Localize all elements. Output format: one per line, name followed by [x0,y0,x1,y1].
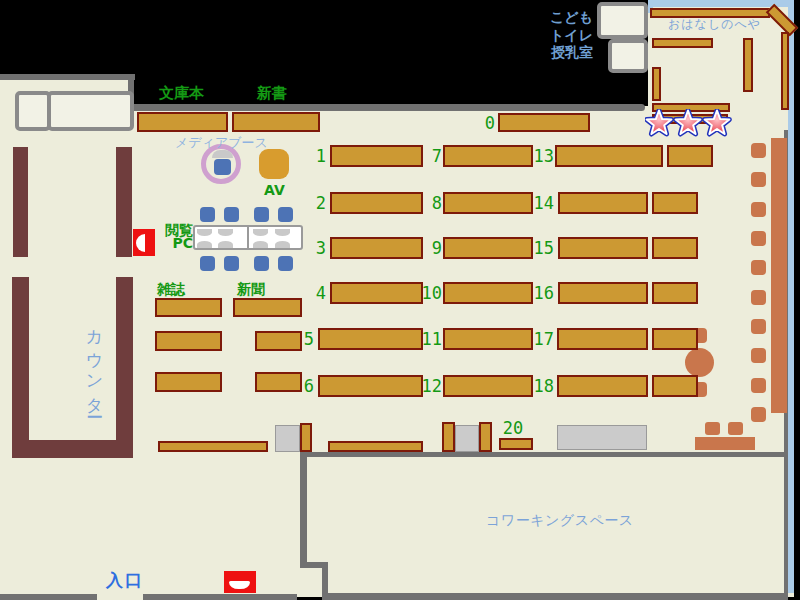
shelf-label-11: 11 [412,329,442,350]
bench-stool [705,422,720,435]
ohanashi-shelf-v2 [652,67,661,101]
pc-chair [278,207,293,222]
shelf-8 [443,192,533,214]
pc-chair [224,207,239,222]
shelf-16 [558,282,648,304]
kids-room-box-2 [608,39,648,73]
pc-table-divider [247,226,249,249]
kids-room-box-1 [597,2,648,39]
pc-station [275,229,290,236]
shelf-label-17: 17 [524,329,554,350]
shelf-label-6: 6 [284,376,314,397]
gray-box-3 [557,425,647,450]
coworking-wall-bottom [322,593,788,600]
counter-label: カウンター [84,318,107,410]
window-stool [751,231,766,246]
pc-station [218,241,233,248]
shelf-label-15: 15 [524,238,554,259]
shelf-label-12: 12 [412,376,442,397]
window-stool [751,290,766,305]
ohanashi-shelf-v1 [743,38,753,92]
shelf-4 [330,282,423,304]
pc-chair [200,256,215,271]
stairs-box-large [47,91,134,131]
window-stool [751,378,766,393]
av-booth [259,149,289,179]
coworking-label: コワーキングスペース [486,512,634,530]
low-shelf-2 [328,441,423,452]
shelf-label-5: 5 [284,329,314,350]
shelf-9 [443,237,533,259]
shelf-17 [557,328,648,350]
window-stool [751,260,766,275]
star-icon [676,111,701,135]
bench [695,437,755,450]
pc-station [218,229,233,236]
shinsho-label: 新書 [257,84,287,103]
ceiling-left [0,0,134,78]
shelf-0 [498,113,590,132]
window-stool [751,172,766,187]
av-label: AV [264,182,284,198]
shelf-18 [557,375,648,397]
shelf-label-3: 3 [296,238,326,259]
shelf-13 [555,145,663,167]
shinsho-shelf [232,112,320,132]
bench-stool [728,422,743,435]
shelf-17-extra [652,328,698,350]
shelf-label-8: 8 [412,193,442,214]
stairs-box-small [15,91,51,131]
junyushitsu-label: 授乳室 [547,44,593,62]
pc-chair [254,256,269,271]
shelf-label-7: 7 [412,146,442,167]
coworking-wall-left2 [322,562,328,597]
shelf-6 [318,375,423,397]
window-stool [751,202,766,217]
shelf-label-14: 14 [524,193,554,214]
low-shelf-v1 [300,423,312,452]
bunkobon-label: 文庫本 [159,84,204,103]
shelf-label-16: 16 [524,283,554,304]
shelf-18-extra [652,375,698,397]
shelf-5 [318,328,423,350]
window-stool [751,143,766,158]
stars-row [645,109,733,138]
shelf-label-0: 0 [465,113,495,134]
pc-chair [200,207,215,222]
ohanashi-room-label: おはなしのへや [668,16,761,33]
pc-station [197,241,212,248]
shelf-label-2: 2 [296,193,326,214]
shelf-11 [443,328,533,350]
pc-station [275,241,290,248]
shelf-7 [443,145,533,167]
counter-left [12,277,29,458]
shelf-3 [330,237,423,259]
media-booth-chair [214,159,231,175]
shelf-label-1: 1 [296,146,326,167]
pc-station [197,229,212,236]
toire-label: トイレ [547,27,593,45]
shelf-10 [443,282,533,304]
star-icon [647,111,672,135]
zasshi-label: 雑誌 [157,281,185,299]
zasshi-shelf-1 [155,298,222,317]
low-shelf-long [158,441,268,452]
shelf-12 [443,375,533,397]
low-shelf-v2 [442,422,455,452]
shelf-1 [330,145,423,167]
star-icon [705,111,730,135]
shelf-label-9: 9 [412,238,442,259]
counter-bar-left-upper [13,147,28,257]
shelf-14-extra [652,192,698,214]
wall-bottom-left [0,594,97,600]
coworking-wall-top [300,452,788,457]
shelf-20 [499,438,533,450]
entrance-label: 入口 [106,569,144,592]
kodomo-label: こども [547,9,593,27]
shelf-13-extra [667,145,713,167]
wall-bottom-mid [143,594,297,600]
window-stool [751,319,766,334]
shelf-14 [558,192,648,214]
shelf-label-10: 10 [412,283,442,304]
pc-label-line2: PC [163,237,193,250]
entrance-opening [97,593,143,600]
counter-bottom [12,440,133,458]
library-floor-map: 文庫本 新書 こども トイレ 授乳室 おはなしのへや メディアブース AV 閲覧… [0,0,800,600]
window-stool [751,407,766,422]
shelf-label-13: 13 [524,146,554,167]
zasshi-shelf-3 [155,372,222,392]
gray-box-2 [455,425,479,452]
bunkobon-shelf [137,112,228,132]
shinbun-shelf-1 [233,298,302,317]
ohanashi-shelf-2 [652,38,713,48]
window-counter [771,138,787,413]
shelf-2 [330,192,423,214]
gray-box-1 [275,425,300,452]
shelf-16-extra [652,282,698,304]
low-shelf-v3 [479,422,492,452]
shelf-label-20: 20 [498,418,528,439]
zasshi-shelf-2 [155,331,222,351]
pc-chair [278,256,293,271]
counter-bar-right-upper [116,147,132,257]
pc-chair [254,207,269,222]
counter-right [116,277,133,440]
shinbun-label: 新聞 [237,281,265,299]
shelf-label-4: 4 [296,283,326,304]
shelf-15 [558,237,648,259]
media-booth-label: メディアブース [175,134,268,152]
window-stool [751,348,766,363]
ohanashi-shelf-v3 [781,32,789,110]
wall-top-h [128,104,645,111]
outer-border-right [794,0,800,600]
shelf-15-extra [652,237,698,259]
pc-station [253,229,268,236]
lounge-table [685,348,714,377]
pc-chair [224,256,239,271]
shelf-label-18: 18 [524,376,554,397]
pc-station [253,241,268,248]
wall-top-left-h [0,74,135,80]
coworking-wall-left [300,452,307,568]
